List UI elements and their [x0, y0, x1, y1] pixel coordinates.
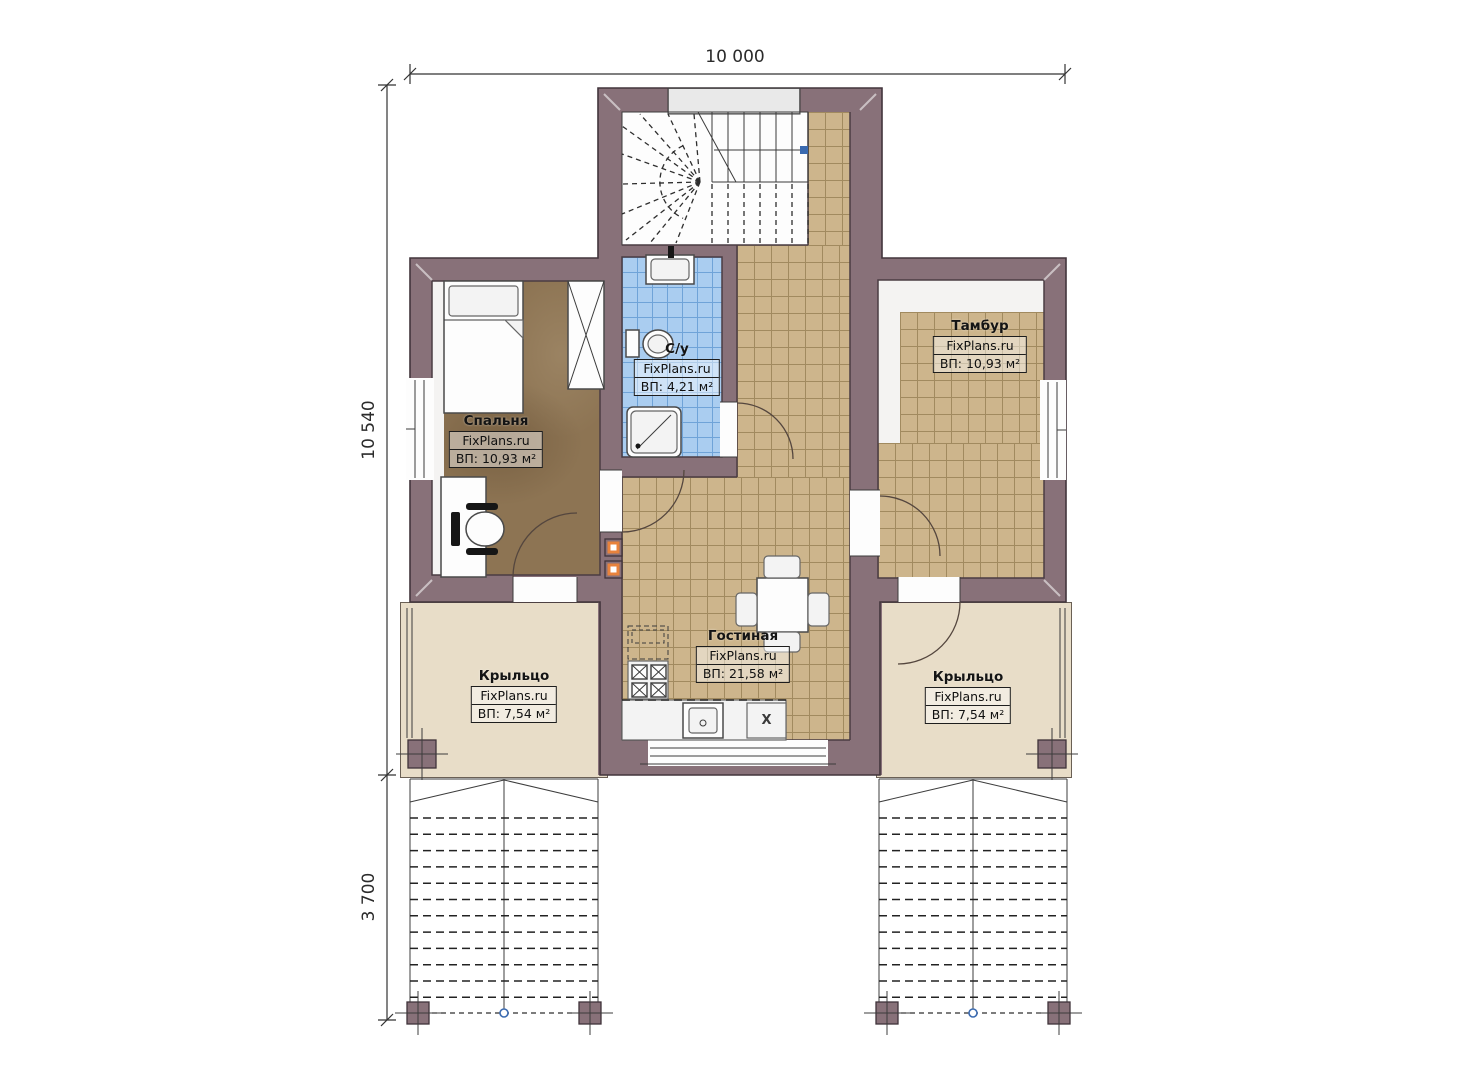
room-area-porch-left: ВП: 7,54 м² — [472, 704, 556, 722]
room-brand-porch-right: FixPlans.ru — [926, 688, 1010, 705]
room-name-porch-right: Крыльцо — [933, 669, 1004, 685]
room-name-living: Гостиная — [708, 628, 778, 644]
room-area-living: ВП: 21,58 м² — [697, 664, 789, 682]
room-label-tambour: Тамбур FixPlans.ru ВП: 10,93 м² — [933, 318, 1027, 373]
room-tag-porch-left: FixPlans.ru ВП: 7,54 м² — [471, 686, 557, 723]
hall-tile-mid — [737, 245, 850, 477]
room-area-tambour: ВП: 10,93 м² — [934, 354, 1026, 372]
room-tag-tambour: FixPlans.ru ВП: 10,93 м² — [933, 336, 1027, 373]
hob-unit-label: X — [747, 703, 786, 738]
room-brand-living: FixPlans.ru — [697, 647, 789, 664]
hall-tile-upper-strip — [808, 112, 850, 245]
staircase-floor — [622, 112, 808, 245]
room-brand-bathroom: FixPlans.ru — [635, 360, 719, 377]
room-brand-porch-left: FixPlans.ru — [472, 687, 556, 704]
entry-landing — [668, 88, 800, 114]
room-name-bedroom: Спальня — [464, 413, 529, 429]
room-area-bedroom: ВП: 10,93 м² — [450, 449, 542, 467]
room-name-bathroom: С/у — [665, 341, 689, 357]
floor-plan: X Спальня FixPlans.ru ВП: 10,93 м² С/у F… — [0, 0, 1473, 1080]
room-label-bedroom: Спальня FixPlans.ru ВП: 10,93 м² — [449, 413, 543, 468]
room-brand-tambour: FixPlans.ru — [934, 337, 1026, 354]
room-label-porch-right: Крыльцо FixPlans.ru ВП: 7,54 м² — [925, 669, 1011, 724]
dimension-width-top: 10 000 — [705, 47, 764, 67]
room-tag-living: FixPlans.ru ВП: 21,58 м² — [696, 646, 790, 683]
bedroom-finish-strip — [432, 281, 444, 575]
room-tag-bathroom: FixPlans.ru ВП: 4,21 м² — [634, 359, 720, 396]
room-tag-bedroom: FixPlans.ru ВП: 10,93 м² — [449, 431, 543, 468]
room-label-porch-left: Крыльцо FixPlans.ru ВП: 7,54 м² — [471, 668, 557, 723]
room-area-porch-right: ВП: 7,54 м² — [926, 705, 1010, 723]
tambour-tile-lower — [878, 443, 1044, 578]
room-label-bathroom: С/у FixPlans.ru ВП: 4,21 м² — [634, 341, 720, 396]
dimension-height-main: 10 540 — [359, 400, 379, 459]
room-area-bathroom: ВП: 4,21 м² — [635, 377, 719, 395]
room-name-porch-left: Крыльцо — [479, 668, 550, 684]
room-brand-bedroom: FixPlans.ru — [450, 432, 542, 449]
living-tile — [622, 477, 850, 740]
room-tag-porch-right: FixPlans.ru ВП: 7,54 м² — [925, 687, 1011, 724]
room-name-tambour: Тамбур — [951, 318, 1008, 334]
dimension-stairs-depth: 3 700 — [359, 873, 379, 922]
room-label-living: Гостиная FixPlans.ru ВП: 21,58 м² — [696, 628, 790, 683]
